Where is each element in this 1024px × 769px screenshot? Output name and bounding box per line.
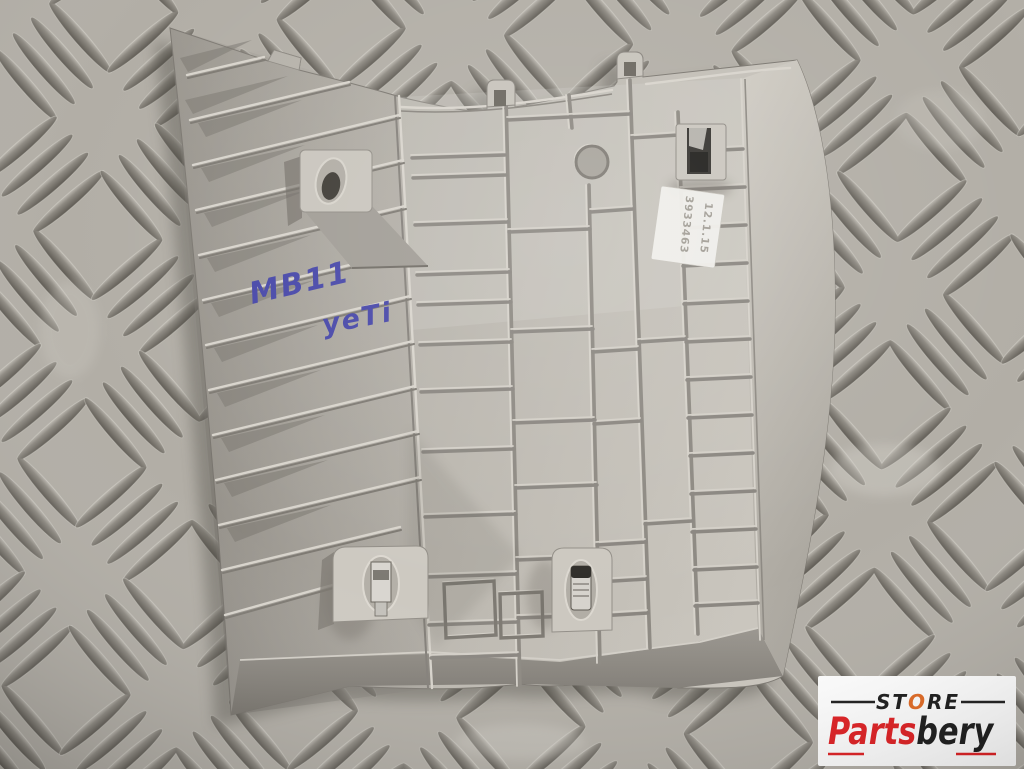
hook-slot <box>624 62 636 76</box>
top-hook-clip-right <box>617 52 643 79</box>
clip-notch <box>373 570 389 580</box>
clip-foot <box>375 602 387 616</box>
worn-patch <box>830 444 940 496</box>
logo-brand-group: Partsbery <box>828 710 995 753</box>
metal-spring-clip <box>371 562 391 602</box>
clip-cap <box>571 566 591 578</box>
metal-clip-shadow <box>690 152 708 172</box>
brand-bery: bery <box>916 710 995 753</box>
photo-stage: 3933463 12.1.15 MB11 yeTi <box>0 0 1024 769</box>
top-hook-clip-left <box>487 80 515 107</box>
watermark-logo: STORE Partsbery <box>818 676 1016 766</box>
worn-patch <box>455 724 585 760</box>
part-label-sticker: 3933463 12.1.15 <box>651 186 725 268</box>
worn-patch <box>40 282 100 378</box>
clip-tower-bottom-centre <box>552 548 612 632</box>
trim-panel-part: 3933463 12.1.15 MB11 yeTi <box>170 28 835 715</box>
hook-slot <box>494 90 506 106</box>
brand-parts: Parts <box>828 710 916 753</box>
clip-tower-bottom-left <box>318 546 428 630</box>
clip-tower-top-right <box>676 124 726 180</box>
worn-patch <box>895 90 985 150</box>
logo-brand-text: Partsbery <box>828 710 995 753</box>
screw-boss-hole <box>576 146 608 178</box>
product-photo: 3933463 12.1.15 MB11 yeTi <box>0 0 1024 769</box>
